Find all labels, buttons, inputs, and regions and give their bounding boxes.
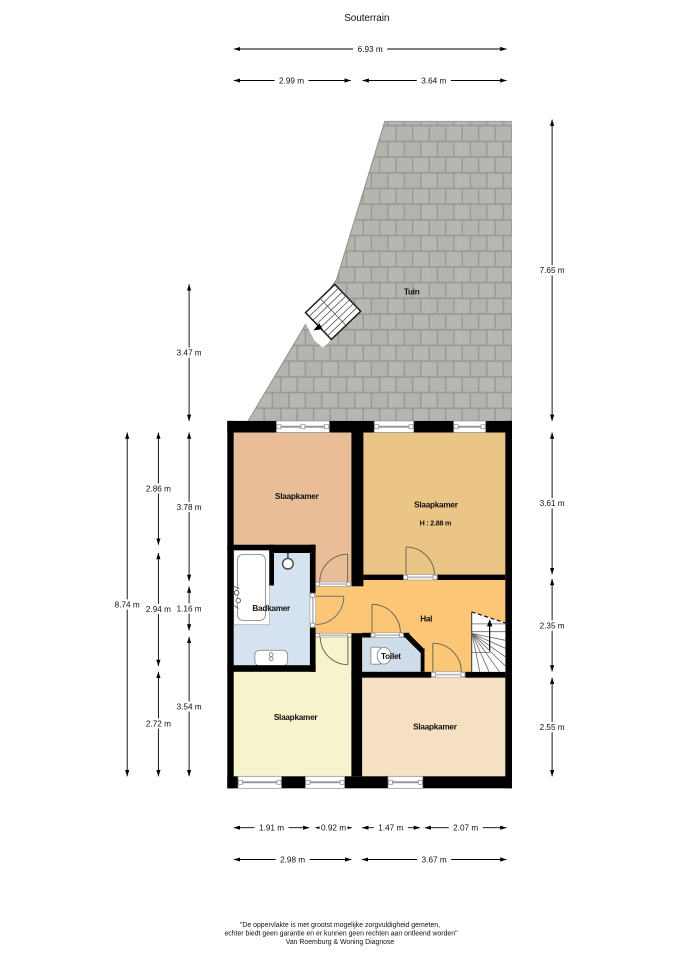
svg-text:8.74 m: 8.74 m <box>115 600 140 609</box>
svg-text:echter biedt geen garantie en: echter biedt geen garantie en er kunnen … <box>224 931 458 938</box>
svg-text:Slaapkamer: Slaapkamer <box>275 492 320 501</box>
svg-text:3.64 m: 3.64 m <box>421 76 446 85</box>
svg-text:2.72 m: 2.72 m <box>146 719 171 728</box>
svg-text:2.55 m: 2.55 m <box>540 723 565 732</box>
svg-text:1.16 m: 1.16 m <box>177 604 202 613</box>
svg-text:3.47 m: 3.47 m <box>177 349 202 358</box>
svg-text:2.94 m: 2.94 m <box>146 605 171 614</box>
svg-text:7.65 m: 7.65 m <box>540 266 565 275</box>
svg-text:Toilet: Toilet <box>381 652 401 661</box>
svg-text:2.86 m: 2.86 m <box>146 484 171 493</box>
svg-text:Van Roemburg & Woning Diagnose: Van Roemburg & Woning Diagnose <box>286 939 395 946</box>
svg-text:0.92 m: 0.92 m <box>321 824 346 833</box>
svg-text:"De oppervlakte is met grootst: "De oppervlakte is met grootst mogelijke… <box>240 922 440 929</box>
svg-text:Slaapkamer: Slaapkamer <box>413 723 458 732</box>
svg-text:Badkamer: Badkamer <box>252 604 291 613</box>
svg-text:Slaapkamer: Slaapkamer <box>274 713 319 722</box>
svg-text:3.54 m: 3.54 m <box>177 702 202 711</box>
svg-text:2.98 m: 2.98 m <box>280 855 305 864</box>
svg-text:Slaapkamer: Slaapkamer <box>414 501 459 510</box>
svg-text:H : 2.88 m: H : 2.88 m <box>420 519 452 527</box>
svg-text:6.93 m: 6.93 m <box>358 45 383 54</box>
svg-text:3.67 m: 3.67 m <box>422 855 447 864</box>
svg-text:3.61 m: 3.61 m <box>540 499 565 508</box>
svg-text:2.99 m: 2.99 m <box>279 76 304 85</box>
svg-text:Souterrain: Souterrain <box>344 13 389 24</box>
svg-text:Tuin: Tuin <box>404 287 420 296</box>
svg-text:2.35 m: 2.35 m <box>540 621 565 630</box>
svg-text:1.47 m: 1.47 m <box>378 824 403 833</box>
svg-text:1.91 m: 1.91 m <box>259 824 284 833</box>
svg-text:Hal: Hal <box>420 615 432 624</box>
svg-text:3.78 m: 3.78 m <box>177 503 202 512</box>
svg-text:2.07 m: 2.07 m <box>453 824 478 833</box>
